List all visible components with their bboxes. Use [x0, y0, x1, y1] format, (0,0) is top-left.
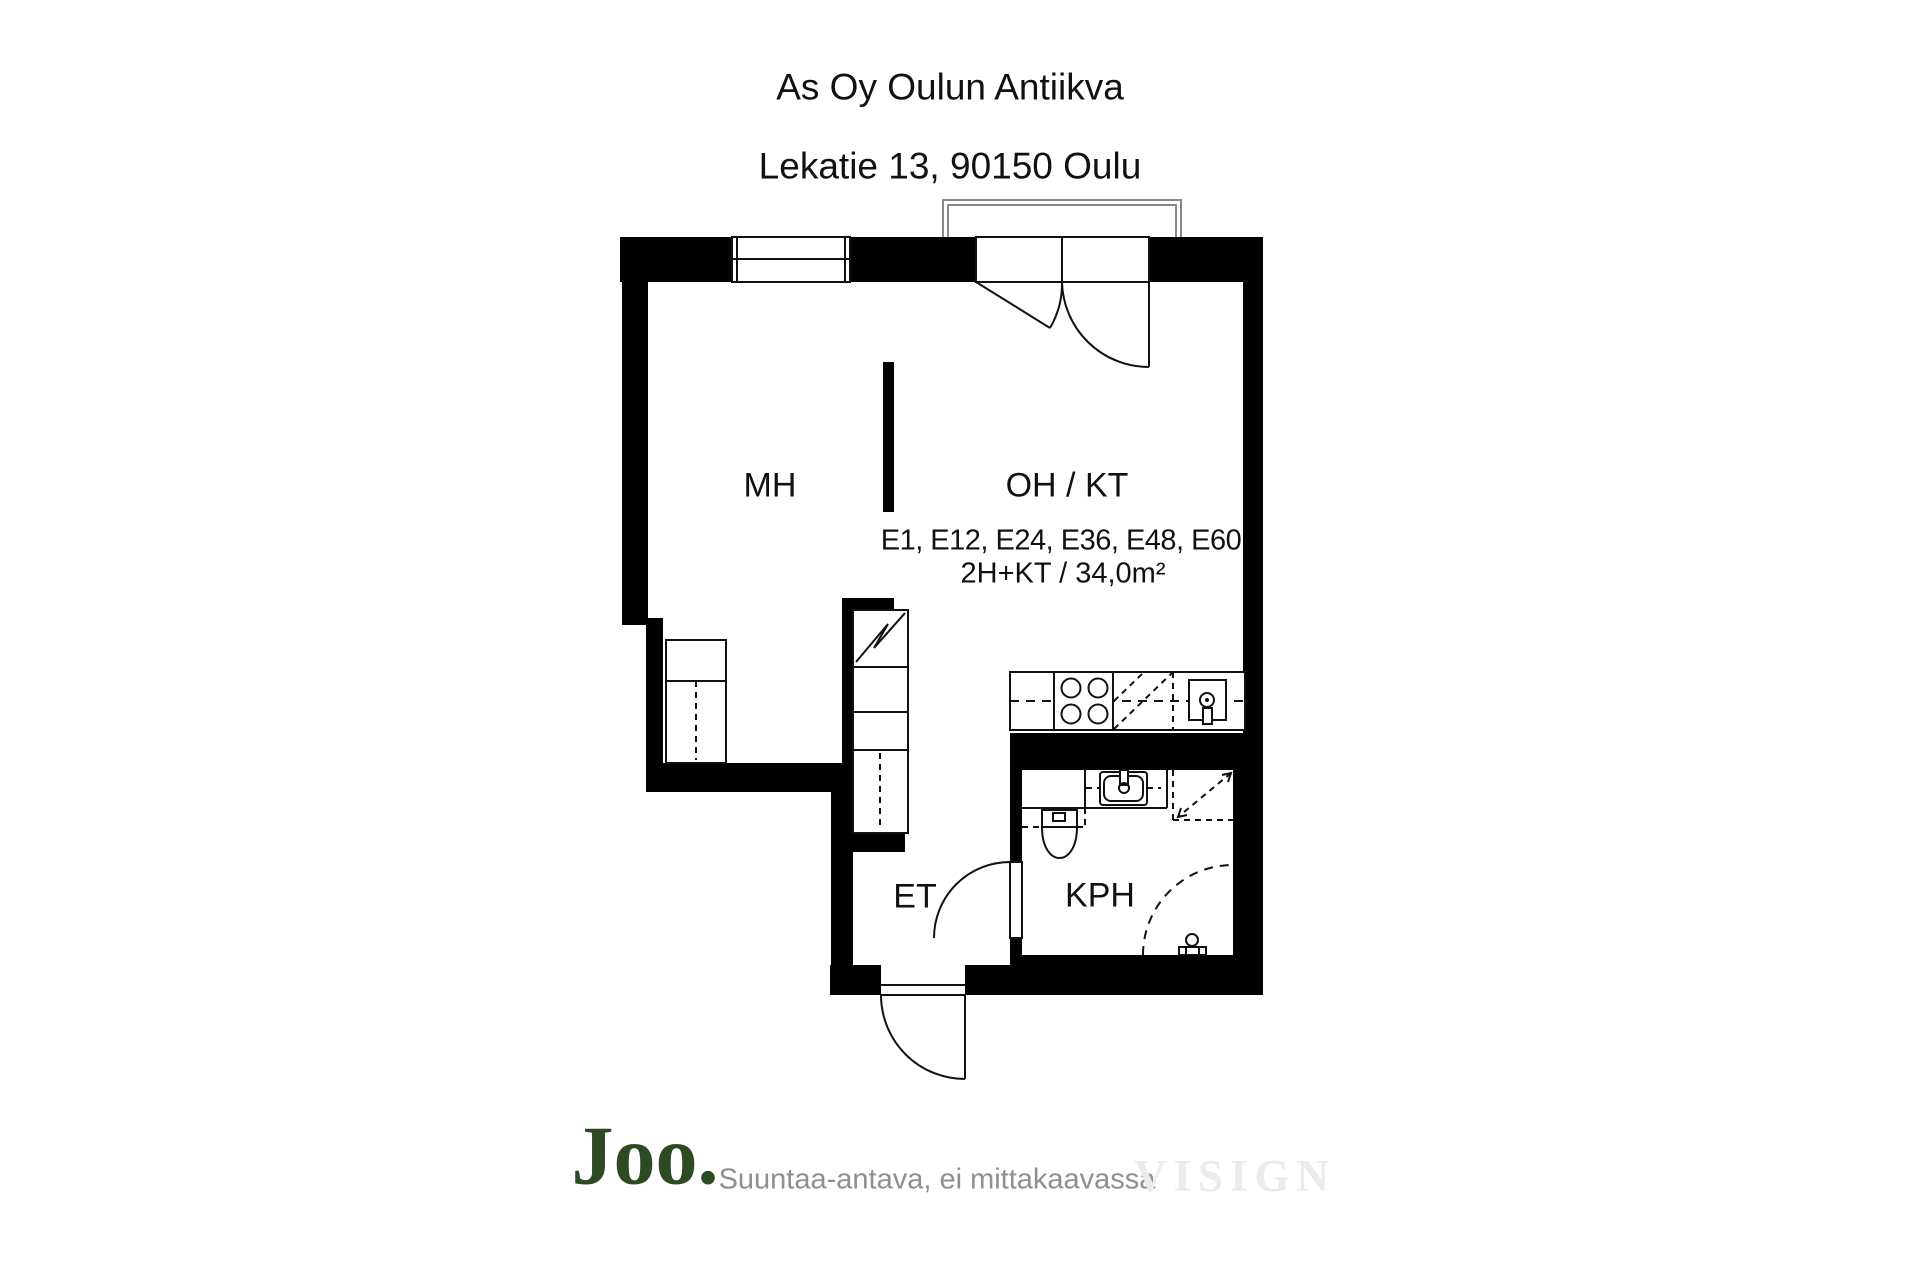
- room-label-bedroom: MH: [744, 466, 797, 505]
- toilet: [1022, 808, 1085, 858]
- floor-drain: [1179, 934, 1206, 955]
- walls: [620, 237, 1263, 995]
- front-door: [881, 985, 965, 1079]
- bedroom-wardrobe: [666, 640, 726, 763]
- joo-logo: Joo.: [572, 1109, 719, 1206]
- balcony-door: [976, 237, 1149, 367]
- washing-machine-reservation: [1173, 770, 1233, 820]
- floor-plan: [0, 0, 1920, 1280]
- balcony-outline: [943, 200, 1181, 238]
- closet-unit: [842, 598, 908, 852]
- kitchen-sink: [1189, 680, 1226, 724]
- bathroom-door: [934, 862, 1022, 938]
- bathroom-vanity: [1022, 770, 1167, 808]
- apartment-type: 2H+KT / 34,0m²: [961, 557, 1166, 590]
- room-label-living-kitchen: OH / KT: [1006, 466, 1129, 505]
- visign-watermark: VISIGN: [1134, 1151, 1336, 1203]
- apartment-numbers: E1, E12, E24, E36, E48, E60: [881, 524, 1242, 557]
- window: [732, 237, 850, 282]
- room-label-bathroom: KPH: [1065, 876, 1135, 915]
- disclaimer-text: Suuntaa-antava, ei mittakaavassa: [719, 1163, 1156, 1196]
- address: Lekatie 13, 90150 Oulu: [759, 146, 1142, 189]
- kitchen-counter: [1010, 672, 1245, 730]
- stove: [1054, 672, 1113, 730]
- partition-wall-stub: [883, 362, 894, 512]
- building-name: As Oy Oulun Antiikva: [776, 67, 1124, 110]
- floorplan-page: { "header": { "building_name": "As Oy Ou…: [0, 0, 1920, 1280]
- room-label-hallway: ET: [893, 877, 936, 916]
